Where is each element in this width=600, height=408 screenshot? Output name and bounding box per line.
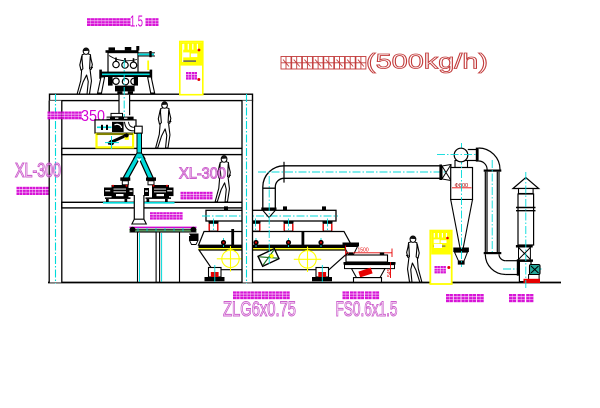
svg-text:(500kg/h): (500kg/h) [366,50,488,74]
svg-text:1500: 1500 [358,248,369,254]
svg-text:XL-300: XL-300 [15,160,61,182]
svg-text:1.5: 1.5 [130,13,143,30]
svg-text:ZLG6x0.75: ZLG6x0.75 [223,297,296,321]
svg-text:XL-300: XL-300 [179,165,226,182]
svg-text:FS0.6x1.5: FS0.6x1.5 [336,297,398,321]
svg-text:545: 545 [387,268,393,277]
